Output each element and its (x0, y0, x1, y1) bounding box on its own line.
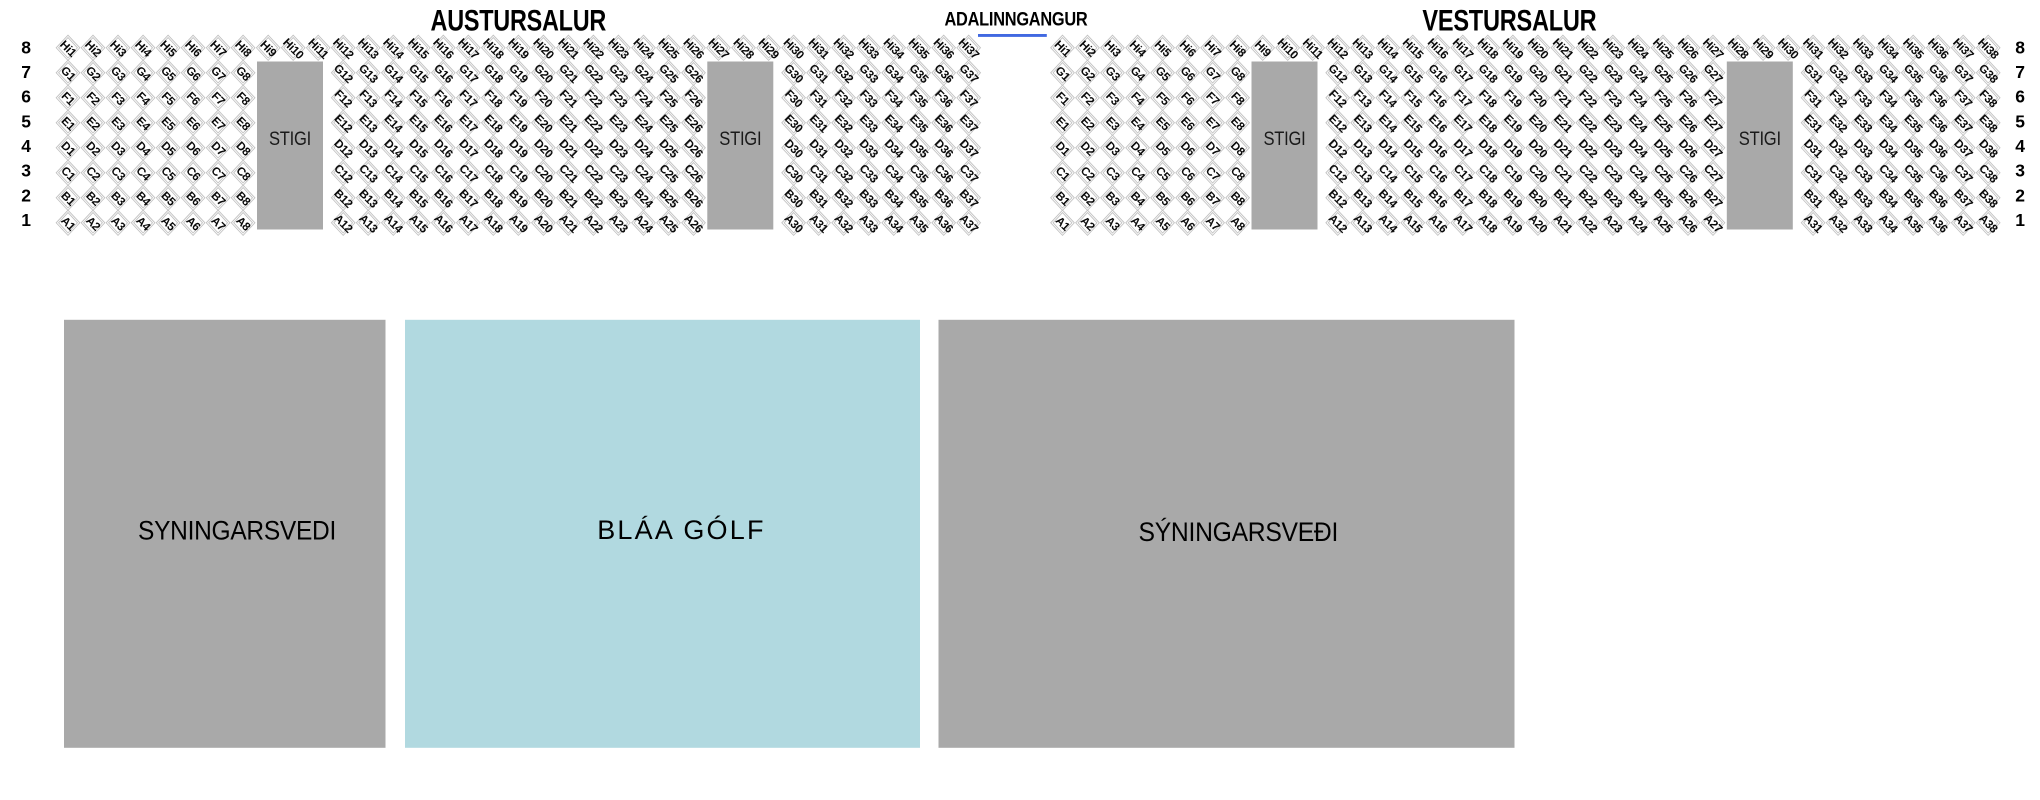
svg-text:Hi27: Hi27 (1700, 36, 1726, 62)
svg-text:B22: B22 (581, 187, 605, 211)
svg-text:C17: C17 (1451, 162, 1475, 186)
svg-text:Hi9: Hi9 (1252, 38, 1274, 60)
svg-text:C20: C20 (1526, 162, 1550, 186)
svg-text:F34: F34 (882, 87, 905, 110)
svg-text:E15: E15 (1401, 112, 1425, 136)
svg-text:C15: C15 (406, 162, 430, 186)
svg-text:F26: F26 (1676, 87, 1699, 110)
svg-text:E24: E24 (1626, 112, 1650, 136)
svg-text:E14: E14 (382, 112, 406, 136)
svg-text:B22: B22 (1576, 187, 1600, 211)
svg-text:C14: C14 (1376, 162, 1400, 186)
svg-text:Hi4: Hi4 (132, 38, 154, 60)
svg-text:G26: G26 (1676, 62, 1701, 87)
svg-text:A37: A37 (1951, 212, 1975, 236)
svg-text:G34: G34 (882, 62, 907, 87)
svg-text:F25: F25 (1651, 87, 1674, 110)
svg-text:G23: G23 (1601, 62, 1626, 87)
svg-text:G23: G23 (606, 62, 631, 87)
svg-text:G20: G20 (1526, 62, 1551, 87)
svg-text:E26: E26 (1676, 112, 1700, 136)
svg-text:Hi2: Hi2 (82, 38, 104, 60)
svg-text:A26: A26 (1676, 212, 1700, 236)
svg-text:E25: E25 (1651, 112, 1675, 136)
svg-text:Hi1: Hi1 (57, 38, 79, 60)
svg-text:E16: E16 (432, 112, 456, 136)
svg-text:C12: C12 (331, 162, 355, 186)
svg-text:A35: A35 (907, 212, 931, 236)
svg-text:D26: D26 (682, 137, 706, 161)
svg-text:Hi5: Hi5 (157, 38, 179, 60)
svg-text:C22: C22 (581, 162, 605, 186)
svg-text:A24: A24 (632, 212, 656, 236)
svg-text:A14: A14 (381, 212, 405, 236)
svg-text:B33: B33 (1851, 187, 1875, 211)
svg-text:D18: D18 (481, 137, 505, 161)
svg-text:D14: D14 (1376, 137, 1400, 161)
svg-text:Hi17: Hi17 (455, 36, 481, 62)
svg-text:F31: F31 (807, 87, 830, 110)
svg-text:8: 8 (21, 37, 31, 57)
svg-text:D24: D24 (632, 137, 656, 161)
svg-text:E23: E23 (607, 112, 631, 136)
svg-text:F21: F21 (1551, 87, 1574, 110)
svg-text:F27: F27 (1701, 87, 1724, 110)
svg-text:B16: B16 (431, 187, 455, 211)
svg-text:F35: F35 (907, 87, 930, 110)
svg-text:2: 2 (21, 185, 31, 205)
svg-text:E36: E36 (1926, 112, 1950, 136)
svg-text:D13: D13 (356, 137, 380, 161)
svg-text:A38: A38 (1976, 212, 2000, 236)
svg-text:A31: A31 (807, 212, 831, 236)
svg-text:C24: C24 (632, 162, 656, 186)
svg-text:G24: G24 (631, 62, 656, 87)
svg-text:D31: D31 (807, 137, 831, 161)
svg-text:D23: D23 (606, 137, 630, 161)
svg-text:A22: A22 (581, 212, 605, 236)
svg-text:F23: F23 (607, 87, 630, 110)
svg-text:D23: D23 (1601, 137, 1625, 161)
svg-text:E22: E22 (582, 112, 606, 136)
svg-text:E37: E37 (957, 112, 980, 135)
svg-text:B20: B20 (1526, 187, 1550, 211)
svg-text:G17: G17 (1451, 62, 1475, 86)
svg-text:B15: B15 (1401, 187, 1425, 211)
svg-text:E19: E19 (507, 112, 531, 136)
svg-text:A21: A21 (1551, 212, 1575, 236)
svg-text:A23: A23 (606, 212, 630, 236)
svg-text:F36: F36 (932, 87, 955, 110)
svg-text:F16: F16 (1426, 87, 1449, 110)
svg-text:5: 5 (2015, 111, 2025, 131)
svg-text:D12: D12 (331, 137, 355, 161)
svg-text:G34: G34 (1876, 62, 1901, 87)
svg-text:D37: D37 (1951, 137, 1975, 161)
svg-text:B26: B26 (1676, 187, 1700, 211)
svg-text:F21: F21 (557, 87, 580, 110)
svg-text:A34: A34 (1876, 212, 1900, 236)
svg-text:B24: B24 (1626, 187, 1650, 211)
svg-text:7: 7 (2015, 62, 2024, 82)
svg-text:C37: C37 (957, 162, 981, 186)
svg-text:D20: D20 (1526, 137, 1550, 161)
svg-text:F22: F22 (582, 87, 605, 110)
svg-text:E32: E32 (1826, 112, 1850, 136)
svg-text:E35: E35 (1901, 112, 1925, 136)
svg-text:A36: A36 (1926, 212, 1950, 236)
svg-text:D30: D30 (782, 137, 806, 161)
svg-text:C30: C30 (782, 162, 806, 186)
svg-text:C21: C21 (1551, 162, 1575, 186)
svg-text:B21: B21 (556, 187, 580, 211)
svg-text:E26: E26 (682, 112, 706, 136)
svg-text:C13: C13 (1351, 162, 1375, 186)
svg-text:F20: F20 (1526, 87, 1549, 110)
svg-text:Hi7: Hi7 (207, 38, 228, 59)
svg-text:E25: E25 (657, 112, 681, 136)
svg-text:D34: D34 (1876, 137, 1900, 161)
svg-text:E17: E17 (1451, 112, 1474, 135)
svg-text:F37: F37 (1952, 87, 1975, 110)
svg-text:A13: A13 (1351, 212, 1375, 236)
svg-text:SYNINGARSVEDI: SYNINGARSVEDI (138, 516, 336, 546)
svg-text:C14: C14 (381, 162, 405, 186)
svg-text:D16: D16 (431, 137, 455, 161)
svg-text:E14: E14 (1376, 112, 1400, 136)
svg-text:F15: F15 (407, 87, 430, 110)
svg-text:Hi3: Hi3 (1102, 38, 1124, 60)
svg-text:A20: A20 (1526, 212, 1550, 236)
svg-text:E38: E38 (1976, 112, 2000, 136)
svg-text:B18: B18 (1476, 187, 1500, 211)
svg-text:C38: C38 (1976, 162, 2000, 186)
svg-text:F35: F35 (1902, 87, 1925, 110)
svg-text:1: 1 (21, 210, 31, 230)
svg-text:C26: C26 (682, 162, 706, 186)
svg-text:A17: A17 (1451, 212, 1475, 236)
svg-text:C20: C20 (531, 162, 555, 186)
svg-text:C21: C21 (556, 162, 580, 186)
svg-text:F16: F16 (432, 87, 455, 110)
svg-text:E36: E36 (932, 112, 956, 136)
svg-text:D12: D12 (1326, 137, 1350, 161)
svg-text:E13: E13 (1351, 112, 1375, 136)
svg-text:E33: E33 (857, 112, 881, 136)
svg-text:C32: C32 (832, 162, 856, 186)
svg-text:E21: E21 (557, 112, 581, 136)
svg-text:G5: G5 (158, 64, 178, 84)
svg-text:G2: G2 (83, 64, 103, 84)
svg-text:Hi4: Hi4 (1127, 38, 1149, 60)
svg-text:B32: B32 (832, 187, 856, 211)
svg-text:F13: F13 (357, 87, 380, 110)
svg-text:C17: C17 (456, 162, 480, 186)
svg-text:G30: G30 (781, 62, 806, 87)
svg-text:B12: B12 (1326, 187, 1350, 211)
svg-text:B21: B21 (1551, 187, 1575, 211)
svg-text:B23: B23 (1601, 187, 1625, 211)
svg-text:G32: G32 (1826, 62, 1851, 87)
svg-text:G20: G20 (531, 62, 556, 87)
svg-text:A25: A25 (1651, 212, 1675, 236)
svg-text:E31: E31 (1801, 112, 1825, 136)
svg-text:A12: A12 (331, 212, 355, 236)
svg-text:G32: G32 (831, 62, 856, 87)
svg-text:C27: C27 (1701, 162, 1725, 186)
svg-text:F12: F12 (332, 87, 355, 110)
svg-text:B14: B14 (1376, 187, 1400, 211)
svg-text:F19: F19 (1501, 87, 1524, 110)
svg-text:A16: A16 (431, 212, 455, 236)
svg-text:G12: G12 (331, 62, 356, 87)
svg-text:E24: E24 (632, 112, 656, 136)
svg-text:C16: C16 (1426, 162, 1450, 186)
svg-text:C32: C32 (1826, 162, 1850, 186)
svg-text:SÝNINGARSVEÐI: SÝNINGARSVEÐI (1139, 517, 1339, 547)
svg-text:E18: E18 (1476, 112, 1500, 136)
svg-text:A27: A27 (1701, 212, 1725, 236)
svg-text:D33: D33 (857, 137, 881, 161)
svg-text:C25: C25 (657, 162, 681, 186)
svg-text:F26: F26 (682, 87, 705, 110)
svg-text:G13: G13 (1351, 62, 1376, 87)
svg-text:A22: A22 (1576, 212, 1600, 236)
svg-text:G19: G19 (506, 62, 531, 87)
svg-text:E13: E13 (356, 112, 380, 136)
svg-text:F24: F24 (632, 87, 655, 110)
svg-text:B37: B37 (1951, 187, 1975, 211)
svg-text:C15: C15 (1401, 162, 1425, 186)
svg-text:G35: G35 (907, 62, 932, 87)
svg-text:B33: B33 (857, 187, 881, 211)
svg-text:F34: F34 (1877, 87, 1900, 110)
svg-text:A15: A15 (1401, 212, 1425, 236)
svg-text:A18: A18 (481, 212, 505, 236)
svg-text:B37: B37 (957, 187, 981, 211)
svg-text:A14: A14 (1376, 212, 1400, 236)
svg-text:B17: B17 (1451, 187, 1475, 211)
svg-text:G38: G38 (1976, 62, 2001, 87)
svg-text:F30: F30 (782, 87, 805, 110)
svg-text:G37: G37 (957, 62, 981, 86)
svg-text:D15: D15 (406, 137, 430, 161)
svg-text:F17: F17 (1451, 87, 1474, 110)
svg-text:F33: F33 (857, 87, 880, 110)
svg-text:B25: B25 (1651, 187, 1675, 211)
svg-text:E20: E20 (532, 112, 556, 136)
svg-text:C19: C19 (506, 162, 530, 186)
svg-text:G16: G16 (431, 62, 456, 87)
svg-text:F25: F25 (657, 87, 680, 110)
svg-text:C16: C16 (431, 162, 455, 186)
svg-text:Hi11: Hi11 (305, 36, 331, 62)
svg-text:A19: A19 (506, 212, 530, 236)
svg-text:D27: D27 (1701, 137, 1725, 161)
svg-text:E37: E37 (1951, 112, 1974, 135)
svg-text:D33: D33 (1851, 137, 1875, 161)
svg-text:E22: E22 (1576, 112, 1600, 136)
svg-text:C23: C23 (606, 162, 630, 186)
svg-text:G6: G6 (1178, 64, 1198, 84)
svg-text:B17: B17 (456, 187, 480, 211)
svg-text:B34: B34 (1876, 187, 1900, 211)
svg-text:E27: E27 (1701, 112, 1724, 135)
svg-text:A35: A35 (1901, 212, 1925, 236)
svg-text:ADALINNGANGUR: ADALINNGANGUR (945, 9, 1088, 31)
svg-text:G3: G3 (108, 64, 128, 84)
svg-text:G22: G22 (581, 62, 606, 87)
svg-text:F31: F31 (1802, 87, 1825, 110)
svg-text:C36: C36 (1926, 162, 1950, 186)
svg-text:2: 2 (2015, 185, 2025, 205)
svg-text:C31: C31 (1801, 162, 1825, 186)
svg-text:A32: A32 (1826, 212, 1850, 236)
svg-text:Hi11: Hi11 (1300, 36, 1326, 62)
svg-text:D21: D21 (556, 137, 580, 161)
svg-text:F18: F18 (482, 87, 505, 110)
svg-text:A33: A33 (857, 212, 881, 236)
svg-text:3: 3 (21, 161, 31, 181)
svg-text:Hi37: Hi37 (1950, 36, 1976, 62)
svg-text:A30: A30 (782, 212, 806, 236)
svg-text:D36: D36 (932, 137, 956, 161)
svg-text:A24: A24 (1626, 212, 1650, 236)
svg-text:B14: B14 (381, 187, 405, 211)
svg-text:Hi8: Hi8 (1227, 38, 1249, 60)
svg-text:G33: G33 (856, 62, 881, 87)
svg-text:G24: G24 (1626, 62, 1651, 87)
svg-text:F23: F23 (1601, 87, 1624, 110)
svg-text:F33: F33 (1852, 87, 1875, 110)
svg-text:B35: B35 (1901, 187, 1925, 211)
svg-text:C18: C18 (1476, 162, 1500, 186)
svg-text:7: 7 (21, 62, 30, 82)
svg-text:C12: C12 (1326, 162, 1350, 186)
svg-text:G1: G1 (58, 64, 78, 84)
svg-text:Hi27: Hi27 (705, 36, 731, 62)
svg-text:F38: F38 (1977, 87, 2000, 110)
svg-text:D21: D21 (1551, 137, 1575, 161)
svg-text:F32: F32 (832, 87, 855, 110)
svg-text:G12: G12 (1326, 62, 1351, 87)
svg-text:D22: D22 (1576, 137, 1600, 161)
svg-text:G1: G1 (1052, 64, 1072, 84)
svg-text:C33: C33 (857, 162, 881, 186)
svg-text:B20: B20 (531, 187, 555, 211)
svg-text:F15: F15 (1401, 87, 1424, 110)
svg-text:F17: F17 (457, 87, 480, 110)
svg-text:E12: E12 (1326, 112, 1350, 136)
svg-text:G2: G2 (1077, 64, 1097, 84)
svg-text:B13: B13 (1351, 187, 1375, 211)
svg-text:G18: G18 (1476, 62, 1501, 87)
svg-text:D17: D17 (456, 137, 480, 161)
svg-text:D22: D22 (581, 137, 605, 161)
svg-text:Hi9: Hi9 (257, 38, 279, 60)
svg-text:G4: G4 (1128, 64, 1148, 84)
svg-text:G5: G5 (1153, 64, 1173, 84)
svg-text:D24: D24 (1626, 137, 1650, 161)
svg-text:C35: C35 (907, 162, 931, 186)
svg-text:A21: A21 (556, 212, 580, 236)
svg-text:D14: D14 (381, 137, 405, 161)
svg-text:G8: G8 (1228, 64, 1248, 84)
svg-text:Hi3: Hi3 (107, 38, 129, 60)
svg-text:A25: A25 (657, 212, 681, 236)
svg-text:B34: B34 (882, 187, 906, 211)
svg-text:B30: B30 (782, 187, 806, 211)
svg-text:B19: B19 (506, 187, 530, 211)
svg-text:C26: C26 (1676, 162, 1700, 186)
svg-text:F14: F14 (382, 87, 405, 110)
svg-text:Hi1: Hi1 (1052, 38, 1074, 60)
svg-text:G16: G16 (1426, 62, 1451, 87)
svg-text:F14: F14 (1376, 87, 1399, 110)
svg-text:G31: G31 (1801, 62, 1826, 87)
svg-text:F22: F22 (1576, 87, 1599, 110)
svg-text:C24: C24 (1626, 162, 1650, 186)
svg-text:Hi17: Hi17 (1450, 36, 1476, 62)
svg-text:G19: G19 (1501, 62, 1526, 87)
svg-text:C36: C36 (932, 162, 956, 186)
svg-text:G18: G18 (481, 62, 506, 87)
svg-text:1: 1 (2015, 210, 2025, 230)
svg-text:G14: G14 (1376, 62, 1401, 87)
svg-text:D34: D34 (882, 137, 906, 161)
svg-text:A32: A32 (832, 212, 856, 236)
svg-text:E20: E20 (1526, 112, 1550, 136)
svg-text:E30: E30 (782, 112, 806, 136)
svg-text:D25: D25 (657, 137, 681, 161)
svg-text:G17: G17 (456, 62, 480, 86)
svg-text:4: 4 (21, 136, 31, 156)
svg-text:A18: A18 (1476, 212, 1500, 236)
svg-text:5: 5 (21, 111, 31, 131)
svg-text:D31: D31 (1801, 137, 1825, 161)
svg-text:BLÁA GÓLF: BLÁA GÓLF (597, 514, 763, 545)
svg-text:D15: D15 (1401, 137, 1425, 161)
svg-text:F37: F37 (957, 87, 980, 110)
svg-text:D35: D35 (907, 137, 931, 161)
svg-text:A15: A15 (406, 212, 430, 236)
svg-text:C23: C23 (1601, 162, 1625, 186)
svg-text:F32: F32 (1827, 87, 1850, 110)
svg-text:B36: B36 (932, 187, 956, 211)
svg-text:G4: G4 (133, 64, 153, 84)
svg-text:STIGI: STIGI (1264, 128, 1306, 150)
svg-text:3: 3 (2015, 161, 2025, 181)
svg-text:E32: E32 (832, 112, 856, 136)
svg-text:Hi2: Hi2 (1077, 38, 1099, 60)
svg-text:G21: G21 (1551, 62, 1576, 87)
svg-text:B31: B31 (807, 187, 831, 211)
svg-text:A34: A34 (882, 212, 906, 236)
svg-text:A19: A19 (1501, 212, 1525, 236)
svg-text:C34: C34 (1876, 162, 1900, 186)
svg-text:G15: G15 (406, 62, 431, 87)
svg-text:E23: E23 (1601, 112, 1625, 136)
svg-text:D13: D13 (1351, 137, 1375, 161)
svg-text:Hi8: Hi8 (232, 38, 254, 60)
svg-text:A23: A23 (1601, 212, 1625, 236)
svg-text:B18: B18 (481, 187, 505, 211)
svg-text:6: 6 (21, 87, 31, 107)
svg-text:D32: D32 (832, 137, 856, 161)
svg-text:E34: E34 (1876, 112, 1900, 136)
svg-text:B23: B23 (606, 187, 630, 211)
svg-text:D25: D25 (1651, 137, 1675, 161)
